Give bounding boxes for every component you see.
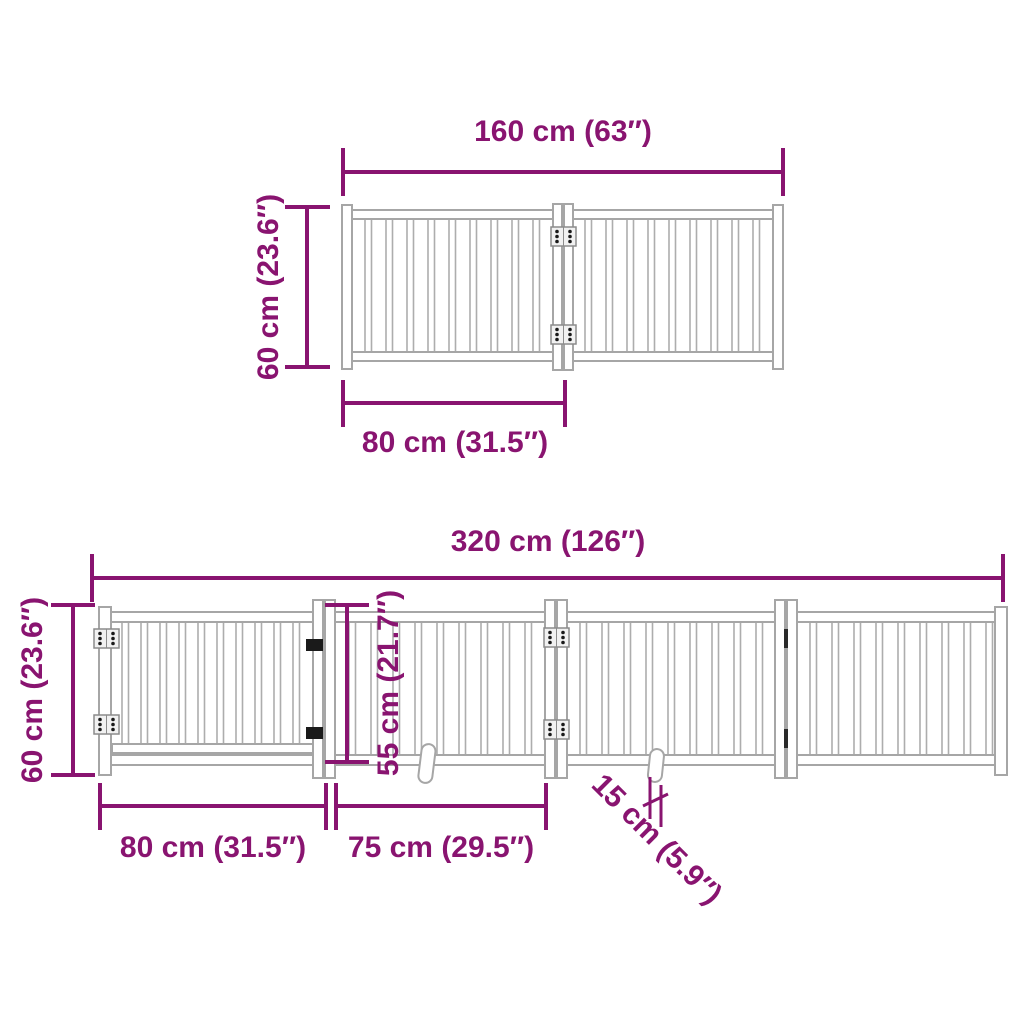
right-post — [995, 607, 1007, 775]
foot-length-label: 15 cm (5.9″) — [585, 768, 728, 911]
bottom-gate-drawing — [94, 600, 1007, 784]
top-total-width-label: 160 cm (63″) — [474, 115, 652, 148]
door-hinge-icon — [306, 639, 323, 651]
diagram-canvas: 160 cm (63″) 60 cm (23.6″) 80 cm (31.5″) — [0, 0, 1024, 1024]
right-post — [773, 205, 783, 369]
first-panel-width-dimension: 80 cm (31.5″) — [100, 783, 326, 864]
panel-4-slats — [810, 620, 993, 757]
door-post-b — [325, 600, 335, 778]
top-panel-width-dimension: 80 cm (31.5″) — [343, 380, 565, 459]
top-height-label: 60 cm (23.6″) — [252, 194, 285, 380]
hinge-icon — [94, 629, 119, 648]
door-hinge-icon — [306, 727, 323, 739]
top-height-dimension: 60 cm (23.6″) — [252, 194, 330, 380]
first-panel-width-label: 80 cm (31.5″) — [120, 831, 306, 864]
bottom-total-width-label: 320 cm (126″) — [451, 525, 646, 558]
foot-length-dimension: 15 cm (5.9″) — [585, 768, 728, 911]
hinge-icon — [551, 227, 576, 246]
top-gate-drawing — [342, 204, 783, 370]
middle-post-b — [557, 600, 567, 778]
bottom-height-dimension: 60 cm (23.6″) — [16, 597, 95, 783]
middle-post-a — [545, 600, 555, 778]
left-post — [342, 205, 352, 369]
fold-post-a — [775, 600, 785, 778]
door-bottom-rail — [112, 744, 313, 753]
bottom-height-label: 60 cm (23.6″) — [16, 597, 49, 783]
bottom-width-dimension: 320 cm (126″) — [92, 525, 1003, 602]
top-panel-width-label: 80 cm (31.5″) — [362, 426, 548, 459]
second-panel-width-label: 75 cm (29.5″) — [348, 831, 534, 864]
fold-post-b — [787, 600, 797, 778]
hinge-icon — [94, 715, 119, 734]
hinge-icon — [544, 628, 569, 647]
panel-3-slats — [580, 620, 763, 757]
second-panel-width-dimension: 75 cm (29.5″) — [336, 783, 546, 864]
door-height-label: 55 cm (21.7″) — [372, 590, 405, 776]
fold-hinge-icon — [784, 729, 788, 748]
fold-hinge-icon — [784, 629, 788, 648]
door-post-a — [313, 600, 323, 778]
top-panel-1-slats — [365, 218, 540, 354]
hinge-icon — [551, 325, 576, 344]
top-panel-2-slats — [585, 218, 760, 354]
hinge-icon — [544, 720, 569, 739]
top-width-dimension: 160 cm (63″) — [343, 115, 783, 196]
product-dimension-diagram: 160 cm (63″) 60 cm (23.6″) 80 cm (31.5″) — [0, 0, 1024, 1024]
door-panel-slats — [122, 620, 300, 744]
